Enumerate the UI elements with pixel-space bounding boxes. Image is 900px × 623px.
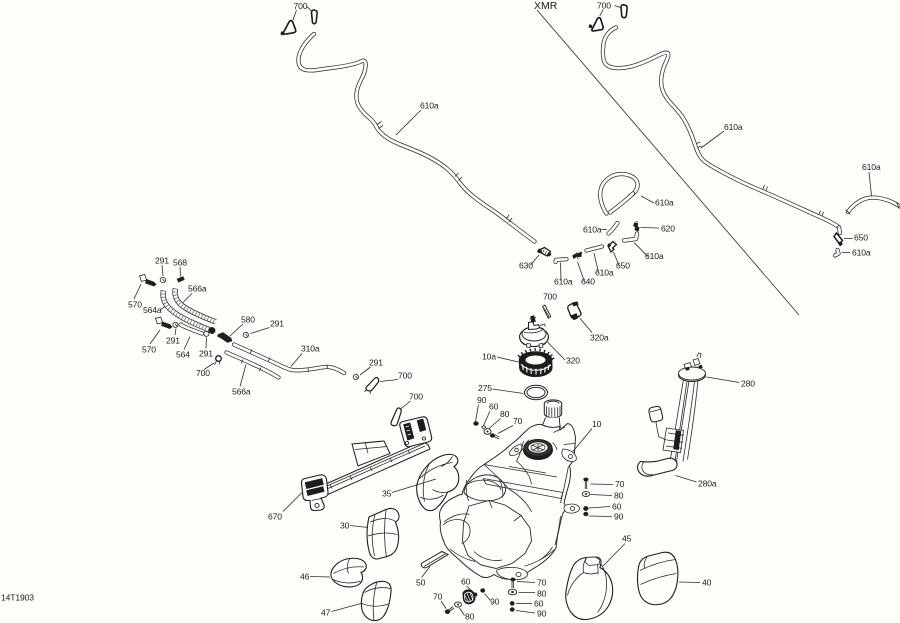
svg-text:291: 291: [369, 358, 383, 368]
svg-text:70: 70: [513, 416, 523, 426]
svg-text:291: 291: [270, 319, 284, 329]
svg-text:10a: 10a: [482, 352, 496, 362]
svg-text:566a: 566a: [188, 284, 207, 294]
svg-text:630: 630: [519, 261, 533, 271]
svg-text:700: 700: [543, 292, 557, 302]
svg-text:70: 70: [433, 592, 443, 602]
svg-text:320a: 320a: [590, 333, 609, 343]
svg-text:10: 10: [592, 419, 602, 429]
svg-text:568: 568: [173, 258, 187, 268]
svg-text:291: 291: [199, 349, 213, 359]
svg-text:564a: 564a: [143, 305, 162, 315]
svg-text:60: 60: [612, 502, 622, 512]
svg-text:610a: 610a: [862, 162, 881, 172]
svg-text:80: 80: [465, 612, 475, 622]
svg-text:610a: 610a: [554, 277, 573, 287]
svg-text:700: 700: [597, 1, 611, 11]
svg-text:30: 30: [340, 521, 350, 531]
svg-text:80: 80: [500, 409, 510, 419]
svg-text:46: 46: [300, 572, 310, 582]
svg-text:14T1903: 14T1903: [1, 593, 34, 603]
svg-text:90: 90: [614, 512, 624, 522]
svg-text:580: 580: [241, 315, 255, 325]
svg-text:610a: 610a: [420, 101, 439, 111]
svg-text:570: 570: [128, 300, 142, 310]
svg-text:564: 564: [176, 350, 190, 360]
svg-text:700: 700: [196, 368, 210, 378]
svg-text:275: 275: [478, 383, 492, 393]
svg-text:50: 50: [416, 578, 426, 588]
svg-text:90: 90: [490, 597, 500, 607]
svg-text:47: 47: [321, 608, 331, 618]
svg-text:700: 700: [398, 371, 412, 381]
svg-text:700: 700: [294, 1, 308, 11]
svg-text:90: 90: [537, 609, 547, 619]
svg-text:80: 80: [614, 491, 624, 501]
svg-text:60: 60: [461, 577, 471, 587]
svg-text:70: 70: [615, 479, 625, 489]
svg-text:310a: 310a: [301, 344, 320, 354]
svg-text:650: 650: [854, 233, 868, 243]
svg-text:566a: 566a: [232, 387, 251, 397]
svg-text:620: 620: [661, 224, 675, 234]
svg-text:610a: 610a: [583, 225, 602, 235]
svg-text:35: 35: [382, 489, 392, 499]
svg-text:291: 291: [155, 256, 169, 266]
svg-text:650: 650: [616, 261, 630, 271]
svg-text:60: 60: [489, 402, 499, 412]
svg-text:70: 70: [537, 578, 547, 588]
svg-text:610a: 610a: [655, 198, 674, 208]
svg-text:610a: 610a: [724, 122, 743, 132]
svg-text:610a: 610a: [852, 248, 871, 258]
svg-text:60: 60: [534, 599, 544, 609]
svg-text:90: 90: [477, 395, 487, 405]
svg-text:280: 280: [741, 379, 755, 389]
svg-text:291: 291: [166, 336, 180, 346]
svg-text:45: 45: [622, 534, 632, 544]
svg-text:40: 40: [702, 578, 712, 588]
svg-text:280a: 280a: [698, 479, 717, 489]
svg-text:570: 570: [142, 345, 156, 355]
svg-text:80: 80: [537, 589, 547, 599]
svg-text:700: 700: [409, 392, 423, 402]
svg-text:320: 320: [566, 356, 580, 366]
svg-text:670: 670: [268, 512, 282, 522]
